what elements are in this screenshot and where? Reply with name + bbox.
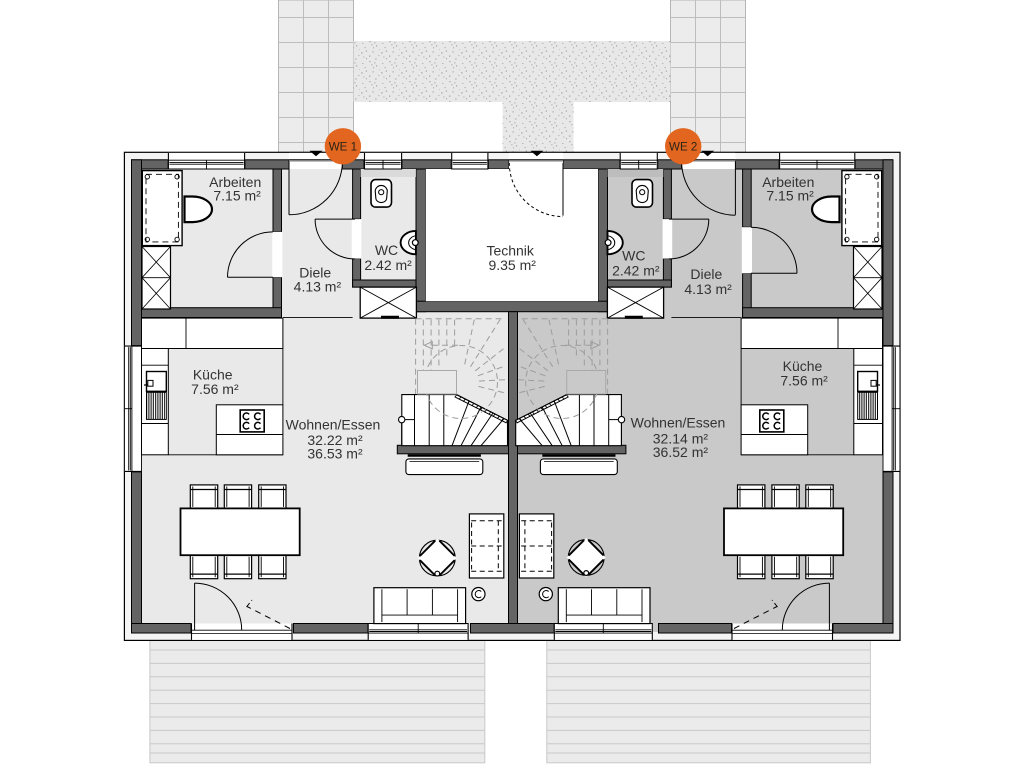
svg-text:WC: WC bbox=[622, 248, 645, 264]
svg-text:7.15 m²: 7.15 m² bbox=[213, 188, 261, 204]
svg-text:2.42 m²: 2.42 m² bbox=[612, 263, 660, 279]
svg-text:7.56 m²: 7.56 m² bbox=[780, 373, 828, 389]
svg-text:7.15 m²: 7.15 m² bbox=[766, 188, 814, 204]
svg-text:7.56 m²: 7.56 m² bbox=[191, 381, 239, 397]
svg-text:WC: WC bbox=[375, 242, 398, 258]
svg-text:36.53 m²: 36.53 m² bbox=[307, 446, 363, 462]
svg-text:9.35 m²: 9.35 m² bbox=[488, 257, 536, 273]
svg-text:Wohnen/Essen: Wohnen/Essen bbox=[286, 417, 381, 433]
svg-text:Diele: Diele bbox=[690, 266, 722, 282]
svg-text:4.13 m²: 4.13 m² bbox=[684, 281, 732, 297]
svg-text:2.42 m²: 2.42 m² bbox=[364, 257, 412, 273]
svg-text:Wohnen/Essen: Wohnen/Essen bbox=[631, 414, 726, 430]
svg-text:36.52 m²: 36.52 m² bbox=[653, 444, 709, 460]
svg-text:WE 2: WE 2 bbox=[669, 141, 697, 154]
svg-text:4.13 m²: 4.13 m² bbox=[294, 279, 342, 295]
svg-text:Küche: Küche bbox=[783, 358, 823, 374]
svg-text:WE 1: WE 1 bbox=[329, 141, 357, 154]
